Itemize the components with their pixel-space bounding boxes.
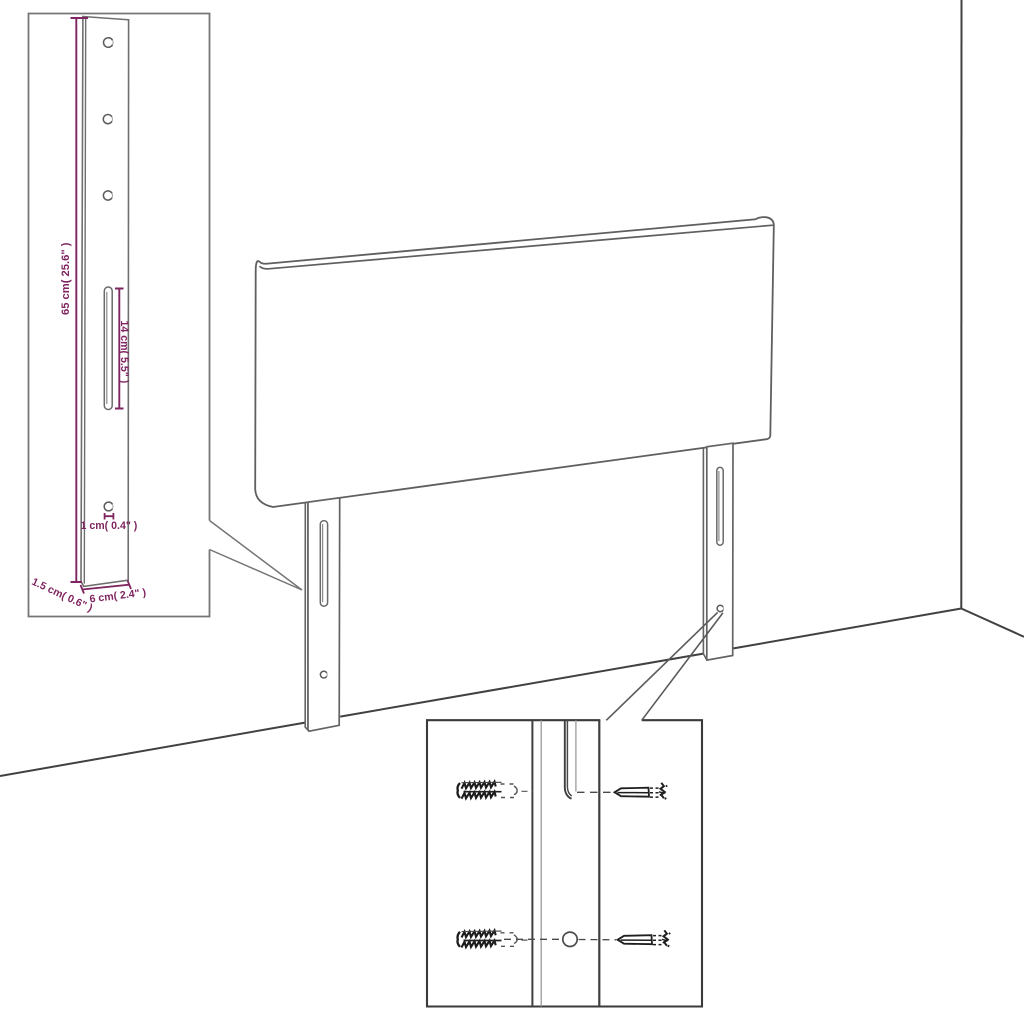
svg-text:65 cm( 25.6" ): 65 cm( 25.6" ) [60,242,72,315]
svg-text:14 cm( 5.5" ): 14 cm( 5.5" ) [118,321,130,384]
svg-text:1 cm( 0.4" ): 1 cm( 0.4" ) [81,520,138,532]
svg-text:6 cm( 2.4" ): 6 cm( 2.4" ) [89,587,147,606]
